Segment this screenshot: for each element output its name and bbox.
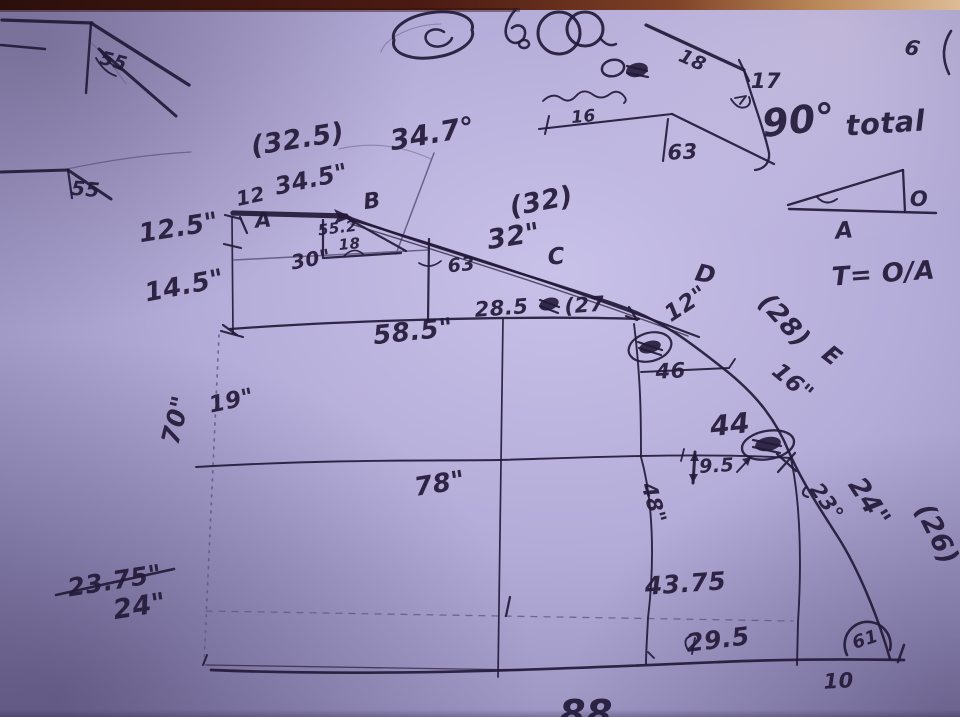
- label-tr-total: total: [844, 103, 926, 143]
- label-angle-63: 63: [447, 253, 477, 278]
- label-dim-44: 44: [707, 406, 751, 443]
- label-dim-43-75: 43.75: [643, 566, 727, 601]
- label-dim-46: 46: [654, 358, 686, 384]
- label-dim-88: 88: [559, 692, 613, 717]
- label-tr-17: 17: [751, 69, 781, 93]
- label-point-C: C: [547, 243, 567, 270]
- label-dim-10: 10: [823, 668, 854, 694]
- label-dim-28-5: 28.5: [474, 294, 529, 322]
- label-tr-63: 63: [667, 139, 698, 165]
- label-tri-A: A: [832, 217, 855, 245]
- label-tl-angle-55b: 55: [70, 176, 101, 202]
- sketch2-line: [1, 170, 68, 172]
- label-tr-16: 16: [570, 106, 596, 128]
- shadow-bottom-band: [0, 640, 960, 717]
- label-point-B: B: [362, 188, 383, 215]
- sketch-canvas: 5555(32.5)34.7°34.5"12AB55.21830"12.5"14…: [0, 0, 960, 717]
- label-paren-27: (27: [564, 292, 606, 319]
- label-tri-O: O: [910, 187, 928, 211]
- vertical-63: [428, 239, 429, 322]
- photo-of-sketch: 5555(32.5)34.7°34.5"12AB55.21830"12.5"14…: [0, 0, 960, 717]
- label-tr-90deg: 90°: [760, 94, 838, 145]
- dim-vertical: [232, 217, 233, 333]
- edge-A-thick: [233, 213, 346, 216]
- label-point-A: A: [252, 207, 273, 233]
- label-dim-18: 18: [338, 234, 361, 254]
- label-dim-9-5: 9.5: [699, 454, 735, 478]
